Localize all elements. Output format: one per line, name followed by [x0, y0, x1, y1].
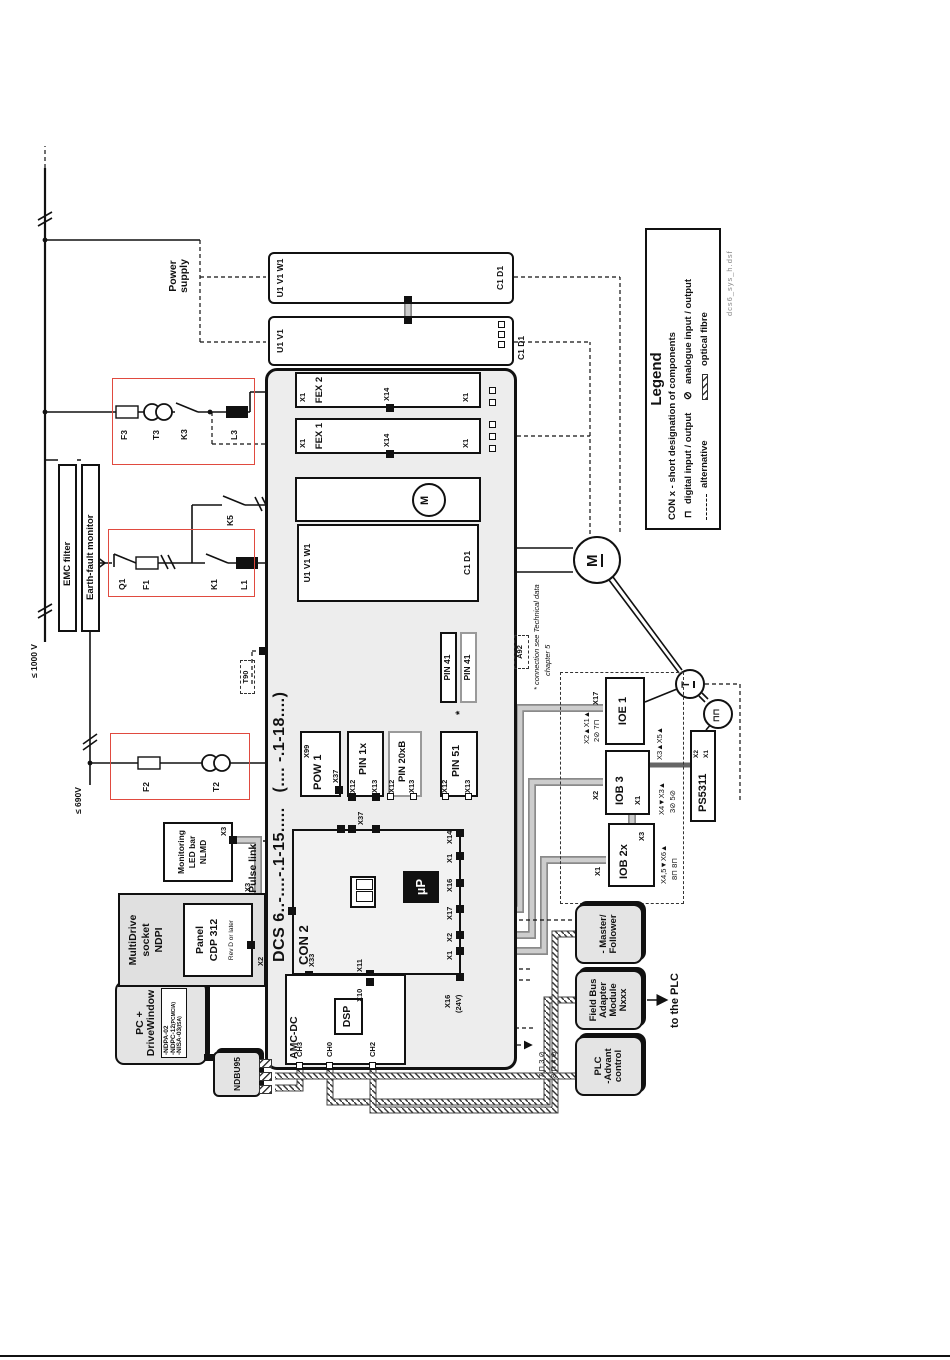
ch0-fibre-port — [326, 1062, 333, 1069]
legend-digital-symbol: ⊓ — [684, 511, 694, 518]
master-label-2: Follower — [609, 914, 619, 953]
f3-label: F3 — [120, 430, 129, 440]
fex2-x1-top: X1 — [299, 393, 307, 402]
fieldbus-label-4: Nxxx — [619, 989, 629, 1012]
ndbu95-box: NDBU95 — [213, 1051, 261, 1097]
cdp312-label: CDP 312 — [209, 905, 220, 975]
con2-x13-connector — [372, 825, 380, 833]
fieldbus-box: Field Bus Adapter Module Nxxx — [575, 970, 643, 1030]
f1-label: F1 — [142, 580, 151, 590]
t90-label: T90 — [242, 661, 250, 693]
input-signal-annotation: 8 ⊓ 4 ⊘ — [550, 1051, 558, 1078]
pin20xb-x13-connector — [410, 793, 417, 800]
plc-label-3: control — [614, 1050, 624, 1082]
ch0-label: CH0 — [326, 1042, 334, 1057]
iob3-io-annotation: X4▼X3▲ — [658, 782, 666, 815]
iob2x-x1-label: X1 — [594, 867, 602, 876]
emc-filter-box: EMC filter — [58, 464, 77, 632]
terminal-pin — [498, 331, 505, 338]
con2-edge-connector — [456, 852, 464, 860]
x16-24v-label: X16 — [444, 995, 452, 1008]
legend-analogue-label: analogue input / output — [684, 279, 694, 384]
isa-note: (ISA) — [177, 1016, 183, 1028]
t3-label: T3 — [152, 430, 161, 440]
pin20xb-x12-connector — [387, 793, 394, 800]
voltage-1000-label: ≤ 1000 V — [30, 644, 39, 678]
ioe1-x17-label: X17 — [592, 692, 600, 705]
x16-24v-connector — [456, 973, 464, 981]
footnote-star: * — [455, 711, 467, 715]
field-supply-frame — [112, 378, 255, 465]
legend-title: Legend — [649, 230, 665, 528]
legend-fibre-label: optical fibre — [700, 312, 710, 366]
earth-fault-monitor-label: Earth-fault monitor — [86, 515, 96, 601]
rev-label: Rev D or later — [229, 905, 236, 975]
q1-label: Q1 — [118, 579, 127, 590]
iob3-x1-label: X1 — [634, 796, 642, 805]
bridge-u1v1w1: U1 V1 W1 — [303, 526, 312, 600]
microprocessor-label: µP — [414, 879, 428, 895]
fex2-x14-connector — [386, 404, 394, 412]
multidrive-label-1: MultiDrive — [128, 895, 139, 985]
rotated-stage: Power supply ≤ 1000 V ≤ 690V EMC filter … — [0, 0, 950, 1360]
page-edge-line — [0, 1355, 950, 1357]
ioe1-io-annotation: X2▲X1▲ — [583, 711, 591, 744]
encoder-glyph: ⊓⊓ — [712, 709, 721, 722]
nisa-label: -NISA-03(ISA) — [177, 991, 184, 1055]
t90-connector — [259, 647, 267, 655]
pcmcia-note: (PCMCIA) — [171, 1002, 177, 1025]
pin1x-x12: X12 — [349, 780, 357, 793]
cable-x3-label: X3 — [244, 883, 252, 892]
fex1-x14: X14 — [383, 434, 391, 447]
ndbu95-label: NDBU95 — [233, 1057, 242, 1091]
pc-ndbu-link — [204, 1054, 215, 1061]
diagram-page: Power supply ≤ 1000 V ≤ 690V EMC filter … — [0, 0, 950, 1360]
fex1-x14-connector — [386, 450, 394, 458]
model-code-2: (.... -.1-18....) — [271, 692, 288, 793]
ps5311-label: PS5311 — [698, 773, 710, 812]
footnote-line1: * connection see Technical data — [533, 584, 541, 690]
con2-x16-label: X16 — [446, 879, 454, 892]
legend-analogue-symbol: ⊘ — [683, 391, 694, 400]
pow1-x37-connector — [335, 786, 343, 794]
fex-terminal — [489, 421, 496, 428]
pin51-label: PIN 51 — [451, 745, 462, 777]
fex-terminal — [489, 445, 496, 452]
seven-segment-display — [350, 876, 376, 908]
armature-terminal-box: U1 V1 W1 C1 D1 — [268, 252, 514, 304]
amc-x10-connector — [366, 978, 374, 986]
pow1-x37-label: X37 — [332, 770, 340, 783]
pulse-link-connector — [288, 907, 296, 915]
iob3-ps-annotation: X3▲X5▲ — [656, 727, 664, 760]
emc-filter-label: EMC filter — [63, 542, 73, 586]
field-terminal-box: U1 V1 — [268, 316, 514, 366]
ioe1-signal-annotation: 2⊘ 7⊓ — [593, 719, 601, 742]
iob3-module: IOB 3 X1 — [605, 750, 650, 815]
legend-alt-symbol — [706, 494, 707, 520]
a92-tag: A92 — [514, 635, 529, 669]
fex-terminal — [489, 387, 496, 394]
ps5311-module: PS5311 X2 X1 — [690, 730, 716, 822]
nlmd-x3-connector — [229, 836, 237, 844]
dsp-label: DSP — [342, 1000, 353, 1033]
fan-motor-label: M — [420, 496, 432, 505]
drawing-file-label: dcs6_sys_h.dsf — [726, 250, 734, 316]
legend-box: Legend CON x - short designation of comp… — [645, 228, 721, 530]
pin20xb-x13: X13 — [408, 780, 416, 793]
display-digit — [356, 879, 373, 890]
legend-fibre-symbol — [702, 374, 708, 400]
ioe1-label: IOE 1 — [618, 679, 630, 743]
pin1x-x12-connector — [348, 793, 356, 801]
ch2-fibre-port — [369, 1062, 376, 1069]
iob3-signal-annotation: 3⊘ 5⊘ — [669, 790, 677, 813]
pin41-label-2: PIN 41 — [463, 634, 472, 701]
pc-cards-box: -NDPA-02 -NDPC-12(PCMCIA) -NISA-03(ISA) — [161, 988, 187, 1058]
con2-x1b-label: X1 — [446, 854, 454, 863]
iob2x-module: IOB 2x X3 — [608, 823, 655, 887]
ioe1-module: IOE 1 — [605, 677, 645, 745]
cable-x2-label: X2 — [257, 957, 265, 966]
iob2x-signal-annotation: 8⊓ 8⊓ — [671, 858, 679, 880]
con2-edge-connector — [456, 879, 464, 887]
x16-24v-sub: (24V) — [455, 995, 463, 1013]
u1v1-label: U1 V1 — [276, 318, 285, 364]
con2-x37-label: X37 — [357, 812, 365, 825]
con2-x33-label: X33 — [308, 954, 316, 967]
microprocessor-chip: µP — [403, 871, 439, 903]
iob2x-io-annotation: X4,5▼X6▲ — [660, 845, 668, 884]
fex2-label: FEX 2 — [315, 370, 325, 410]
plc-advant-box: PLC -Advant control — [575, 1036, 643, 1096]
ps5311-x1-label: X1 — [704, 750, 711, 758]
ch2-label: CH2 — [369, 1042, 377, 1057]
pc-drivewindow-box: PC + DriveWindow -NDPA-02 -NDPC-12(PCMCI… — [115, 981, 207, 1065]
ndbu-fibre-stub — [259, 1072, 272, 1081]
footnote-line2: chapter 5 — [544, 645, 552, 676]
t90-tag: T90 — [240, 660, 255, 694]
fan-unit-box — [295, 477, 481, 522]
con2-edge-connector — [456, 947, 464, 955]
terminal-pin — [498, 341, 505, 348]
bridge-connector — [404, 296, 412, 304]
con2-x11-label: X11 — [356, 959, 364, 972]
a92-label: A92 — [516, 636, 524, 668]
multidrive-label-3: NDPI — [154, 895, 165, 985]
ndbu-fibre-stub — [259, 1085, 272, 1094]
fex1-label: FEX 1 — [315, 416, 325, 456]
amc-x10-label: X10 — [356, 989, 364, 1002]
pin41-label-1: PIN 41 — [443, 634, 452, 701]
fex1-x1-bottom: X1 — [462, 439, 470, 448]
pin1x-x13-connector — [372, 793, 380, 801]
bridge-c1d1: C1 D1 — [463, 526, 472, 600]
multidrive-label-2: socket — [141, 895, 152, 985]
ch3-fibre-port — [296, 1062, 303, 1069]
f2-label: F2 — [142, 782, 151, 792]
c1d1-ext-label: C1 D1 — [517, 336, 526, 360]
legend-con-x: CON x - short designation of components — [668, 332, 678, 520]
con2-x1a-label: X1 — [446, 951, 454, 960]
monitoring-label-3: NLMD — [199, 824, 208, 880]
drive-model-title: DCS 6..-....-.1-15..... (.... -.1-18....… — [272, 692, 289, 962]
pin20xb-x12: X12 — [388, 780, 396, 793]
con2-x14-label: X14 — [446, 831, 454, 844]
con2-x12-connector — [348, 825, 356, 833]
u1v1w1-label: U1 V1 W1 — [276, 254, 285, 302]
fex2-x14: X14 — [383, 388, 391, 401]
ndbu-fibre-stub — [259, 1059, 272, 1068]
panel-label: Panel — [195, 905, 206, 975]
con2-x17-label: X17 — [446, 907, 454, 920]
nlmd-x3-label: X3 — [220, 827, 228, 836]
l1-label: L1 — [240, 580, 249, 590]
motor-label: M — [585, 555, 603, 568]
monitoring-label-2: LED bar — [188, 824, 197, 880]
con2-edge-connector — [456, 905, 464, 913]
con2-x2-label: X2 — [446, 933, 454, 942]
cdp312-panel-box: Panel CDP 312 Rev D or later — [183, 903, 253, 977]
con2-edge-connector — [456, 829, 464, 837]
main-breaker-frame — [108, 529, 255, 597]
nisa-code: -NISA-03 — [176, 1028, 183, 1055]
fex1-x1-top: X1 — [299, 439, 307, 448]
t2-label: T2 — [212, 782, 221, 792]
earth-fault-monitor-box: Earth-fault monitor — [81, 464, 100, 632]
pin20xb-label: PIN 20xB — [398, 741, 408, 782]
legend-alt-label: alternative — [700, 440, 710, 488]
pin51-x13: X13 — [464, 780, 472, 793]
ps5311-x2-label: X2 — [694, 750, 701, 758]
output-signal-annotation: 7 ⊓ 3 ⊘ — [538, 1051, 546, 1078]
pc-label-2: DriveWindow — [146, 990, 157, 1056]
fex-terminal — [489, 433, 496, 440]
pin41-board-1: PIN 41 — [440, 632, 457, 703]
iob2x-label: IOB 2x — [619, 844, 631, 879]
fex-terminal — [489, 399, 496, 406]
voltage-690-label: ≤ 690V — [74, 787, 83, 814]
pow1-label: POW 1 — [313, 755, 325, 790]
c1d1-label: C1 D1 — [496, 254, 505, 302]
iob3-x2-label: X2 — [592, 791, 600, 800]
iob2x-x3-label: X3 — [638, 832, 646, 841]
pin1x-label: PIN 1x — [358, 743, 369, 775]
con2-edge-connector — [456, 931, 464, 939]
monitoring-label-1: Monitoring — [177, 824, 186, 880]
pin51-x13-connector — [465, 793, 472, 800]
thyristor-bridge-box: U1 V1 W1 C1 D1 — [297, 524, 479, 602]
x99-label: X99 — [303, 745, 311, 758]
power-supply-label: Power supply — [168, 244, 190, 308]
display-digit — [356, 891, 373, 902]
pin1x-x13: X13 — [371, 780, 379, 793]
model-code-1: DCS 6..-....-.1-15..... — [271, 807, 288, 962]
bridge-connector — [404, 316, 412, 324]
pin51-x12-connector — [442, 793, 449, 800]
fex2-x1-bottom: X1 — [462, 393, 470, 402]
k1-label: K1 — [210, 579, 219, 590]
legend-digital-label: digital input / output — [684, 413, 694, 504]
pin41-board-2: PIN 41 — [460, 632, 477, 703]
panel-x2-connector — [247, 941, 255, 949]
ch3-label: CH3 — [296, 1042, 304, 1057]
master-follower-box: - Master/ Follower — [575, 904, 643, 964]
aux-supply-frame — [110, 733, 250, 800]
terminal-pin — [498, 321, 505, 328]
iob3-label: IOB 3 — [615, 776, 627, 805]
power-wires — [38, 146, 298, 785]
to-the-plc-label: to the PLC — [670, 973, 682, 1028]
dsp-chip: DSP — [334, 998, 363, 1035]
l3-label: L3 — [230, 430, 239, 440]
con2-x37-connector — [337, 825, 345, 833]
k3-label: K3 — [180, 429, 189, 440]
k5-label: K5 — [226, 515, 235, 526]
pin51-x12: X12 — [441, 780, 449, 793]
